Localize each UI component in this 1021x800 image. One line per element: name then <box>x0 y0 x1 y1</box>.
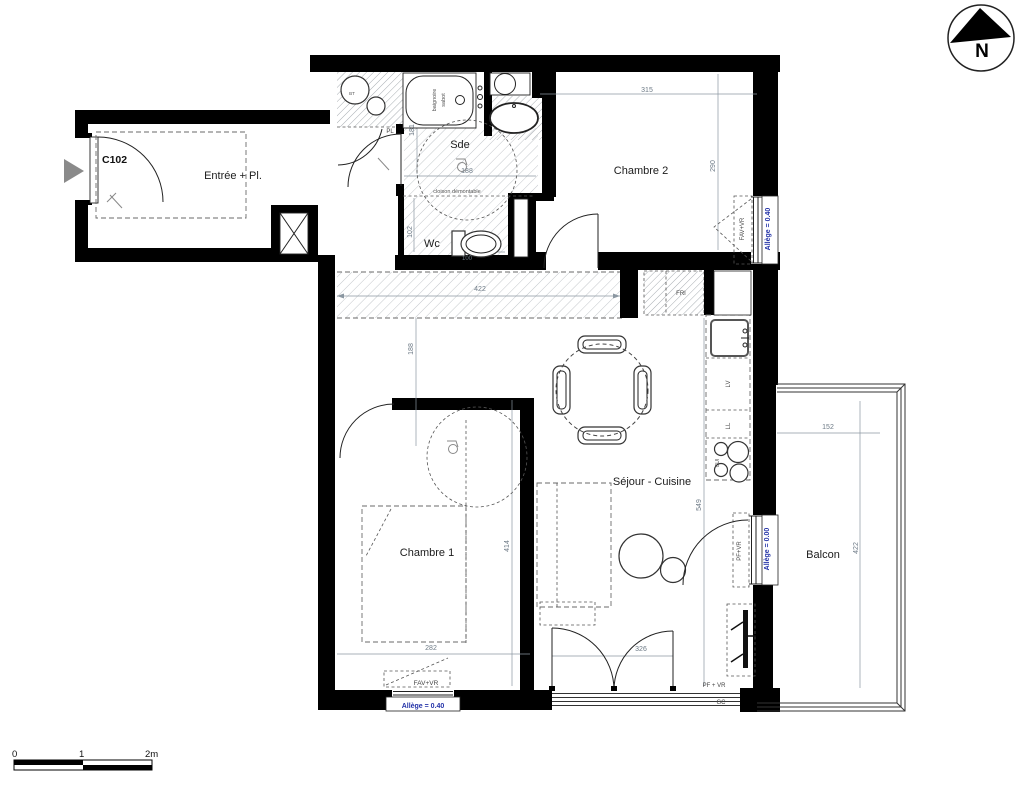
sofa-poufs <box>619 534 686 583</box>
scale-two: 2m <box>145 749 158 760</box>
door-label-balcon: PF+VR <box>737 541 743 561</box>
wheelchair-icon <box>447 441 458 454</box>
allege-label-ch2: Allège = 0.40 <box>765 208 772 251</box>
dim-bay-width: 326 <box>635 646 647 653</box>
room-label-sde: Sde <box>450 139 470 151</box>
technical-shaft <box>280 213 308 254</box>
guardrail <box>552 694 740 706</box>
dim-sde-depth: 181 <box>409 124 416 136</box>
north-arrow: N <box>948 5 1014 71</box>
sink-column <box>490 73 530 95</box>
room-label-entree: Entrée + Pl. <box>204 170 262 182</box>
room-label-wc: Wc <box>424 238 440 250</box>
room-label-balcon: Balcon <box>806 549 840 561</box>
allege-label-balcon: Allège = 0.00 <box>764 528 771 571</box>
washer-label: LL <box>726 422 732 429</box>
partition-label: cloison démontable <box>433 189 480 195</box>
scale-zero: 0 <box>12 749 17 760</box>
north-label: N <box>975 41 989 62</box>
bathtub-label-2: sabot <box>441 93 447 107</box>
unit-label: C102 <box>102 154 127 166</box>
fridge-cabinet <box>714 271 751 315</box>
scale-one: 1 <box>79 749 84 760</box>
window-label-ch2: FAV+VR <box>740 217 746 240</box>
entry-marker-icon <box>64 159 84 183</box>
washbasin <box>490 103 538 133</box>
dim-ch1-depth: 414 <box>504 540 511 552</box>
floor-plan: N 0 1 2m C102 Entrée + Pl. Sde Wc Chambr… <box>0 0 1021 800</box>
dim-ch2-width: 315 <box>641 87 653 94</box>
dim-hall-width: 422 <box>474 286 486 293</box>
kitchen-counter <box>706 315 750 482</box>
guardrail-label: GC <box>717 700 727 706</box>
closet-label: PL <box>386 129 394 135</box>
kitchen-sink <box>711 320 749 356</box>
wardrobe <box>537 483 611 625</box>
room-label-chambre2: Chambre 2 <box>614 165 668 177</box>
dim-kitchen-run: 549 <box>696 499 703 511</box>
window-label-ch1: FAV+VR <box>414 680 439 687</box>
water-heater-label: BT <box>349 91 355 96</box>
dining-table <box>553 336 651 444</box>
cooktop-label: CUI <box>715 459 721 468</box>
dim-hall-depth: 188 <box>408 343 415 355</box>
dim-balcon-width: 152 <box>822 424 834 431</box>
chambre2-door <box>544 214 598 268</box>
chambre1-door <box>340 404 394 458</box>
pl-door <box>338 129 382 165</box>
radiator <box>727 604 756 676</box>
dim-ch2-height: 290 <box>710 160 717 172</box>
wc-door <box>514 199 528 257</box>
bay-doors <box>549 628 676 691</box>
floor-plan-drawing: N 0 1 2m C102 Entrée + Pl. Sde Wc Chambr… <box>0 0 1021 800</box>
dishwasher-label: LV <box>726 381 732 388</box>
bed <box>362 420 466 644</box>
entry-door <box>90 137 163 208</box>
toilet <box>452 231 501 257</box>
dim-wc-depth: 102 <box>407 226 414 238</box>
allege-label-ch1: Allège = 0.40 <box>402 703 445 710</box>
scale-bar: 0 1 2m <box>12 749 158 770</box>
dim-wc-width: 100 <box>462 256 473 262</box>
fridge-label: FRI <box>676 291 686 297</box>
bathtub-label-1: baignoire <box>432 89 438 112</box>
dim-sde-width: 188 <box>461 168 473 175</box>
room-label-sejour: Séjour - Cuisine <box>613 476 691 488</box>
dim-ch1-width: 282 <box>425 645 437 652</box>
bay-label: PF + VR <box>703 683 727 689</box>
dim-balcon-depth: 422 <box>853 542 860 554</box>
room-label-chambre1: Chambre 1 <box>400 547 454 559</box>
